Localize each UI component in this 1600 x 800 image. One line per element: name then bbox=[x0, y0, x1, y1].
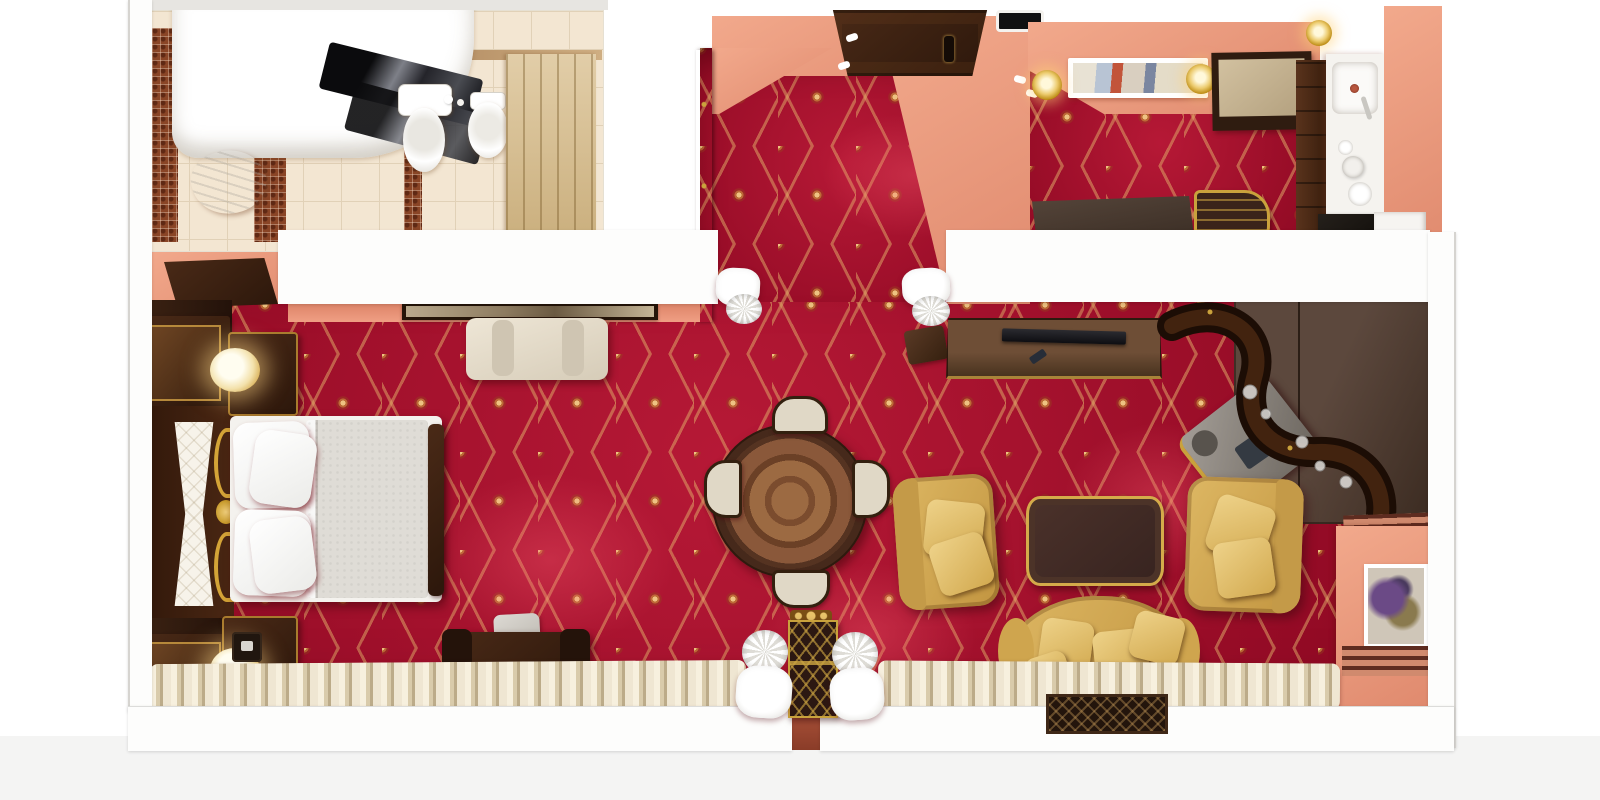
gold-fitting bbox=[1288, 446, 1293, 451]
table-lamp bbox=[210, 348, 260, 392]
column-capital bbox=[828, 666, 885, 722]
wardrobe-strip bbox=[1296, 60, 1326, 232]
bed-duvet bbox=[306, 420, 428, 598]
bathroom-wood-door bbox=[506, 54, 596, 246]
dining-chair-east bbox=[852, 460, 890, 518]
chandelier bbox=[1306, 20, 1332, 46]
dining-chair-north bbox=[772, 396, 828, 434]
console-gold-band bbox=[790, 661, 836, 665]
tv-side-stool bbox=[903, 325, 948, 365]
coffee-table bbox=[1026, 496, 1164, 586]
outer-wall-right bbox=[1428, 232, 1456, 748]
dining-chair-south bbox=[772, 570, 830, 608]
dining-chair-west bbox=[704, 460, 742, 518]
outer-wall-left bbox=[128, 0, 152, 712]
coffee-table-top bbox=[1035, 505, 1155, 577]
overhead-cabinet-panel bbox=[1218, 58, 1305, 116]
coffee-plate bbox=[1348, 182, 1372, 206]
outer-wall-bottom bbox=[128, 706, 792, 751]
coffee-cup bbox=[1338, 140, 1353, 155]
telephone bbox=[232, 632, 262, 662]
loveseat-bench bbox=[466, 318, 608, 380]
sink-drain bbox=[1350, 84, 1359, 93]
gold-fitting bbox=[1208, 310, 1213, 315]
entry-door-handle bbox=[944, 36, 954, 62]
partition-wall bbox=[278, 230, 718, 304]
louver-panel bbox=[1342, 646, 1430, 676]
column-shaft bbox=[726, 294, 762, 324]
bedroom-wall-picture-art bbox=[406, 306, 654, 317]
coffee-maker bbox=[1342, 156, 1364, 178]
chandelier bbox=[1032, 70, 1062, 100]
armchair bbox=[1184, 476, 1305, 614]
ceiling-picture-art bbox=[1073, 63, 1203, 93]
partition-wall bbox=[946, 230, 1430, 302]
bar-glass bbox=[1340, 476, 1352, 488]
bed-pillow bbox=[247, 428, 319, 510]
entry-double-door bbox=[828, 10, 992, 76]
bar-glass bbox=[1315, 461, 1325, 471]
bathroom-top-wall-edge bbox=[128, 0, 608, 10]
bar-glass bbox=[1243, 385, 1257, 399]
bidet-bowl bbox=[468, 102, 508, 158]
bar-glass bbox=[1261, 409, 1271, 419]
loveseat-arm bbox=[492, 320, 514, 376]
floor-grille bbox=[1046, 694, 1168, 734]
telephone-keys bbox=[241, 641, 253, 651]
wall-painting bbox=[1364, 564, 1428, 648]
loveseat-arm bbox=[562, 320, 584, 376]
bar-glass bbox=[1296, 436, 1308, 448]
column-capital bbox=[734, 664, 793, 720]
carpet-light-glow bbox=[420, 470, 680, 650]
bed-pillow bbox=[248, 514, 319, 595]
armchair-back bbox=[1272, 479, 1305, 614]
tv-console bbox=[946, 318, 1162, 379]
suite-floorplan-render bbox=[0, 0, 1600, 800]
armchair bbox=[892, 473, 1001, 612]
window-curtains bbox=[150, 660, 746, 710]
toilet-bowl bbox=[403, 108, 445, 172]
armchair-cushion bbox=[1212, 536, 1277, 600]
kitchen-sink bbox=[1332, 62, 1378, 114]
toiletry-bottles bbox=[444, 95, 453, 104]
bed-footboard bbox=[428, 424, 444, 596]
column-shaft bbox=[912, 296, 950, 326]
